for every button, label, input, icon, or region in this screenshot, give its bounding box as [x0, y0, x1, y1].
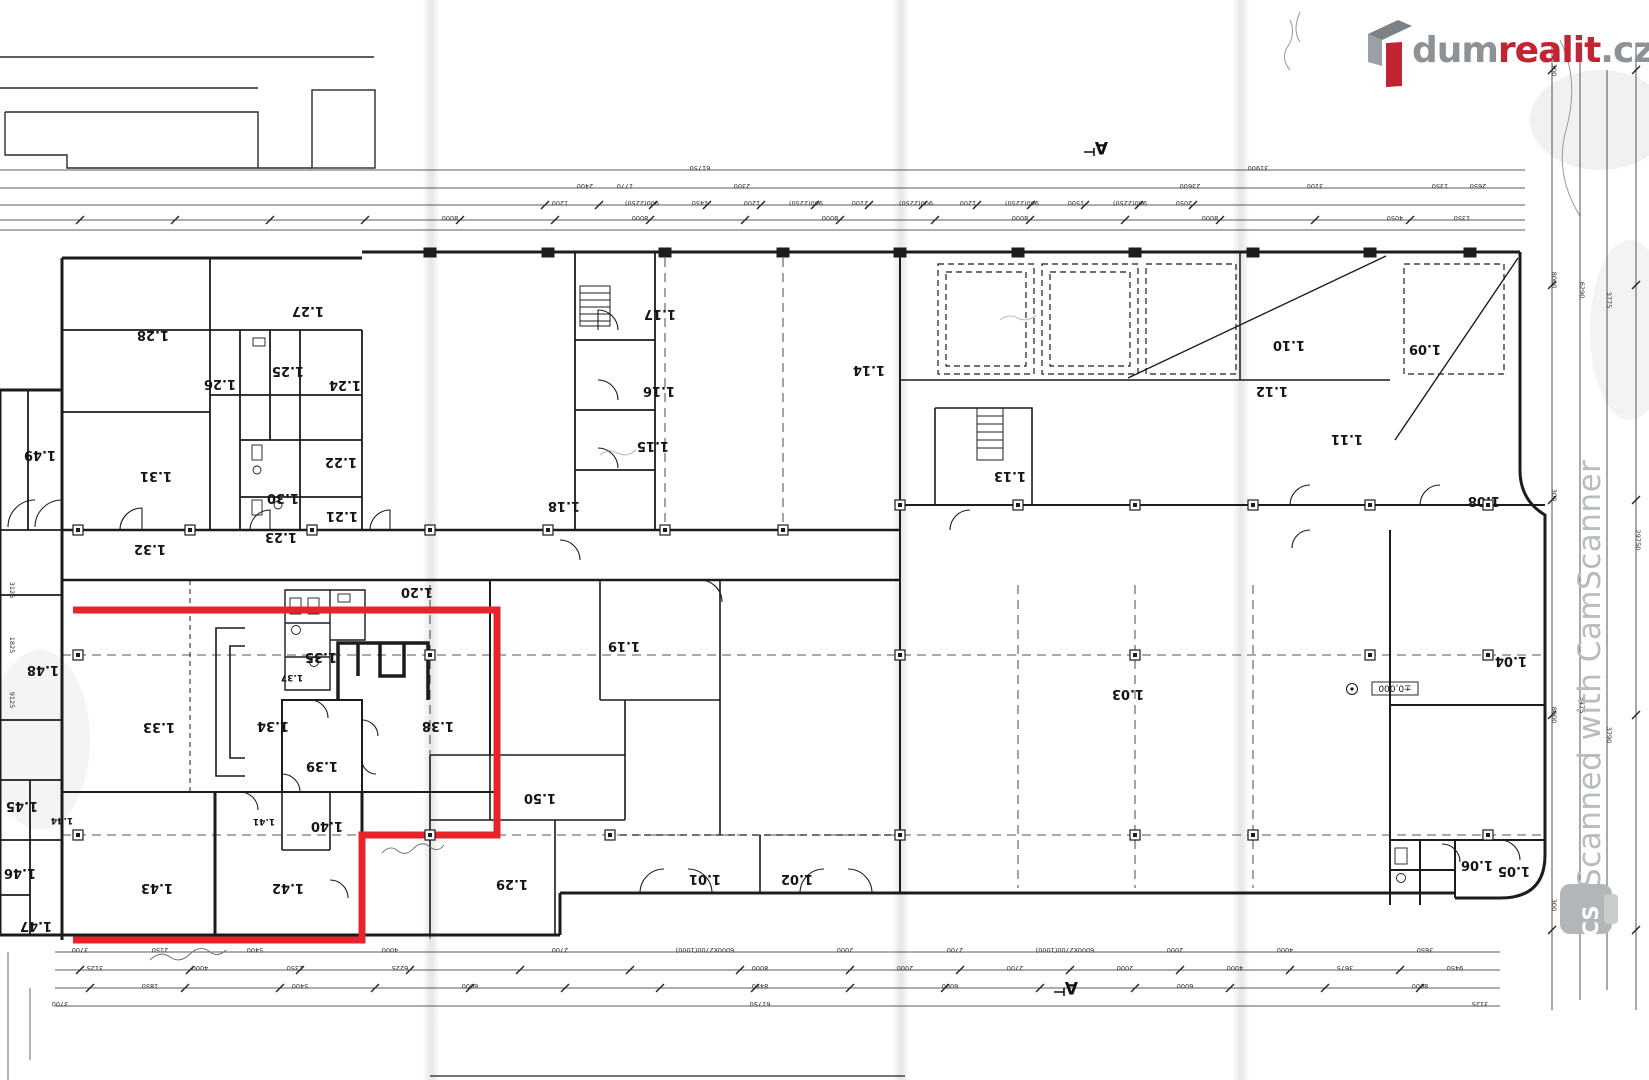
room-label: 1.42 — [272, 880, 304, 895]
room-label: 1.35 — [305, 649, 337, 664]
dimension-label: 3100 — [1307, 182, 1324, 190]
dimension-label: 2700 — [1007, 964, 1024, 972]
brand-tld: .cz — [1600, 30, 1649, 71]
room-label: 1.25 — [272, 363, 304, 378]
room-label: 1.15 — [637, 438, 669, 453]
dimension-label: 3125 — [1472, 1000, 1489, 1008]
column-core — [428, 528, 432, 532]
column-core — [428, 833, 432, 837]
dimension-label: 2150 — [152, 946, 169, 954]
column-core — [1133, 503, 1137, 507]
dimension-label: 4000 — [1277, 946, 1294, 954]
room-label: 1.32 — [134, 541, 166, 556]
column-core — [1133, 833, 1137, 837]
dimension-lines-top — [0, 170, 1525, 230]
column-core — [76, 833, 80, 837]
room-label: 1.30 — [267, 490, 299, 505]
dimension-label: 1200 — [960, 199, 977, 207]
room-label: 1.23 — [265, 529, 297, 544]
room-label: 1.27 — [292, 303, 324, 318]
dimension-label: 4000 — [382, 946, 399, 954]
room-label: 1.24 — [329, 377, 361, 392]
room-label: 1.41 — [253, 816, 275, 826]
brand-name-accent: realit — [1498, 30, 1601, 71]
door-arcs — [8, 310, 1520, 898]
dimension-label: 3700 — [52, 1000, 69, 1008]
column-core — [1486, 833, 1490, 837]
dimension-label: 9450 — [1447, 964, 1464, 972]
room-label: 1.11 — [1331, 431, 1363, 446]
room-label: 1.44 — [51, 815, 73, 825]
dimension-label: 2700 — [947, 946, 964, 954]
room-label: 1.50 — [524, 790, 556, 805]
dimension-label: 6225 — [392, 964, 409, 972]
section-marker-bottom: A — [1064, 977, 1078, 997]
dimension-label: 2650 — [1470, 182, 1487, 190]
dimension-label: 8000 — [632, 214, 649, 222]
room-label: 1.19 — [608, 638, 640, 653]
dimension-label: 1850 — [142, 982, 159, 990]
column-core — [1368, 503, 1372, 507]
column-core — [898, 503, 902, 507]
column-core — [898, 833, 902, 837]
column-core — [1251, 833, 1255, 837]
dimension-label: 3125 — [87, 964, 104, 972]
stairs-top — [580, 286, 610, 326]
dimension-label: 2000 — [837, 946, 854, 954]
room-label: 1.39 — [306, 758, 338, 773]
dimension-label: 4000 — [1227, 964, 1244, 972]
section-marker-top: A — [1094, 137, 1108, 157]
room-label: 1.28 — [137, 327, 169, 342]
dimension-label: 1350 — [1454, 214, 1471, 222]
column-core — [781, 528, 785, 532]
room-label: 1.14 — [853, 362, 885, 377]
room-label: 1.47 — [20, 918, 52, 933]
dimension-label: 2000 — [1167, 946, 1184, 954]
camscanner-watermark-text: Scanned with CamScanner — [1572, 460, 1608, 888]
dimension-label: 2700 — [552, 946, 569, 954]
dimension-label: 3700 — [72, 946, 89, 954]
elevation-marker: ±0,000 — [1347, 682, 1419, 695]
room-label: 1.09 — [1409, 341, 1441, 356]
dimension-label: 9125 — [8, 692, 16, 709]
room-label: 1.34 — [257, 718, 289, 733]
room-label: 1.05 — [1498, 863, 1530, 878]
camscanner-badge-text: CS — [1579, 906, 1603, 937]
room-label: 1.12 — [1256, 383, 1288, 398]
room-label: 1.43 — [141, 880, 173, 895]
column-core — [546, 528, 550, 532]
floor-plan-svg: A A ±0,000 1.011.021.031.041.051.061.081… — [0, 0, 1649, 1080]
stairs-mid — [977, 408, 1003, 460]
dimension-label: 300 — [1550, 899, 1558, 911]
room-label: 1.10 — [1273, 337, 1305, 352]
room-label: 1.17 — [644, 306, 676, 321]
column-core — [1133, 653, 1137, 657]
dimension-label: 1500 — [1068, 199, 1085, 207]
column-core — [188, 528, 192, 532]
dimension-label: 1350 — [287, 964, 304, 972]
dimension-label: 8000 — [442, 214, 459, 222]
room-label: 1.48 — [27, 662, 59, 677]
scan-artifacts — [0, 0, 1649, 1080]
column-core — [1016, 503, 1020, 507]
dimension-label: 5400 — [247, 946, 264, 954]
room-label: 1.38 — [422, 718, 454, 733]
svg-text:dumrealit.cz: dumrealit.cz — [1412, 30, 1649, 71]
structural-columns-layer — [73, 500, 1493, 840]
room-label: 1.33 — [143, 719, 175, 734]
room-label: 1.03 — [1112, 686, 1144, 701]
room-label: 1.37 — [281, 672, 303, 682]
dimension-label: 3775 — [1605, 292, 1613, 309]
dimension-label: 2050 — [1176, 199, 1193, 207]
room-label: 1.22 — [325, 454, 357, 469]
room-label: 1.26 — [204, 376, 236, 391]
brand-name-gray: dum — [1412, 30, 1498, 71]
dimension-label: 4050 — [1387, 214, 1404, 222]
dimension-label: 3650 — [1417, 946, 1434, 954]
column-core — [608, 833, 612, 837]
floor-plan-walls — [0, 248, 1545, 940]
room-label: 1.21 — [326, 508, 358, 523]
room-labels-layer: 1.011.021.031.041.051.061.081.091.101.11… — [4, 303, 1530, 933]
dimension-label: 900(2250) — [899, 199, 933, 207]
dimension-label: 900(2250) — [625, 199, 659, 207]
dimension-label: 6000x2700(1000) — [1036, 946, 1095, 954]
dimension-label: 6290 — [1578, 282, 1586, 299]
room-label: 1.01 — [689, 871, 721, 886]
dimension-label: 4000 — [192, 964, 209, 972]
room-label: 1.02 — [781, 871, 813, 886]
dimension-label: 3675 — [1337, 964, 1354, 972]
dimension-label: 6000 — [1177, 982, 1194, 990]
dimension-label: 1825 — [8, 637, 16, 654]
dimension-label: 2100 — [852, 199, 869, 207]
dimension-label: 1350 — [1432, 182, 1449, 190]
room-label: 1.06 — [1461, 857, 1493, 872]
dimension-label: 23600 — [1180, 182, 1201, 190]
room-label: 1.04 — [1495, 653, 1527, 668]
brand-building-icon — [1368, 20, 1412, 87]
dimension-label: 2000 — [1117, 964, 1134, 972]
column-core — [1486, 503, 1490, 507]
dashed-partitions — [938, 264, 1504, 374]
column-core — [663, 528, 667, 532]
column-core — [310, 528, 314, 532]
dimension-label: 8000 — [822, 214, 839, 222]
dimension-label: 29750 — [1634, 530, 1642, 551]
dimension-label: 6000x2700(1000) — [676, 946, 735, 954]
dimension-labels-layer: 6175031900240017702300236003100135026501… — [8, 64, 1642, 1008]
dimension-label: 8000 — [1012, 214, 1029, 222]
dimension-label: 2300 — [734, 182, 751, 190]
room-label: 1.18 — [548, 498, 580, 513]
room-label: 1.40 — [311, 818, 343, 833]
room-label: 1.13 — [994, 468, 1026, 483]
camscanner-badge: CS — [1560, 884, 1618, 936]
column-core — [1251, 503, 1255, 507]
dimension-label: 61750 — [750, 1000, 771, 1008]
room-label: 1.29 — [496, 876, 528, 891]
room-label: 1.31 — [140, 468, 172, 483]
site-boundary-lines — [0, 57, 375, 168]
dimension-label: 1200 — [552, 199, 569, 207]
room-label: 1.46 — [4, 865, 36, 880]
dimension-label: 1770 — [617, 182, 634, 190]
column-core — [76, 653, 80, 657]
room-label: 1.20 — [401, 584, 433, 599]
column-core — [428, 653, 432, 657]
elevation-label: ±0,000 — [1378, 683, 1412, 693]
scanned-floorplan-page: A A ±0,000 1.011.021.031.041.051.061.081… — [0, 0, 1649, 1080]
column-core — [1368, 653, 1372, 657]
room-label: 1.49 — [24, 447, 56, 462]
dimension-label: 2000 — [897, 964, 914, 972]
column-core — [1486, 653, 1490, 657]
column-core — [76, 528, 80, 532]
dimension-label: 31900 — [1248, 164, 1269, 172]
column-core — [898, 653, 902, 657]
dimension-label: 8000 — [752, 964, 769, 972]
dimension-label: 8000 — [1202, 214, 1219, 222]
dimension-label: 61750 — [690, 164, 711, 172]
room-label: 1.16 — [643, 383, 675, 398]
dimension-label: 1200 — [744, 199, 761, 207]
dimension-label: 300 — [1550, 489, 1558, 501]
dimension-label: 5400 — [292, 982, 309, 990]
camscanner-watermark: Scanned with CamScanner CS — [1560, 460, 1618, 937]
room-label: 1.45 — [6, 798, 38, 813]
dimension-label: 2400 — [577, 182, 594, 190]
dimension-label: 3125 — [8, 582, 16, 599]
